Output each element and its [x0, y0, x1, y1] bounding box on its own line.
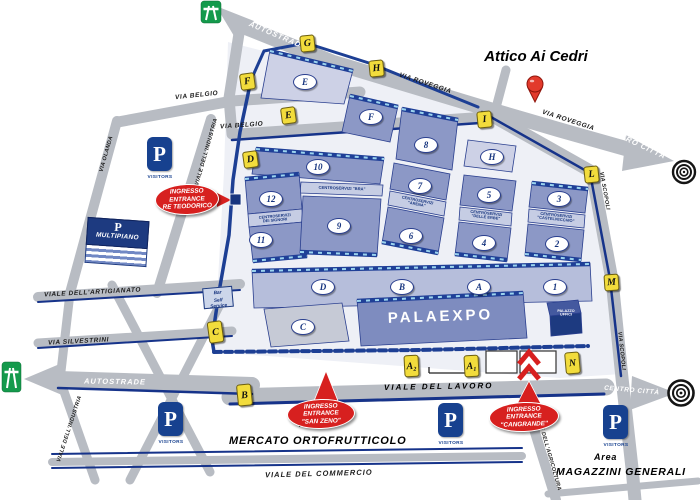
parking-visitors-label: VISITORS: [144, 175, 176, 180]
hall-label-10: 10: [306, 159, 330, 175]
gate-marker-f: F: [239, 72, 256, 91]
re-teodorico-gate-square: [230, 194, 241, 205]
road-label-autostrade-bottom: AUTOSTRADE: [84, 376, 146, 386]
hall-label-12: 12: [259, 191, 283, 207]
hall-label-9: 9: [327, 218, 351, 234]
map-title: Attico Ai Cedri: [436, 48, 636, 65]
multipiano-parking: PMULTIPIANO: [84, 217, 149, 267]
motorway-icon: [201, 1, 221, 23]
hall-label-d: D: [311, 279, 335, 295]
hall-label-11: 11: [249, 232, 273, 248]
parking-visitors-label: VISITORS: [155, 440, 187, 445]
hall-label-6: 6: [399, 228, 423, 244]
magazzini-label: MAGAZZINI GENERALI: [556, 466, 686, 478]
hall-label-2: 2: [545, 236, 569, 252]
road-label-viale-del-lavoro: VIALE DEL LAVORO: [384, 381, 494, 392]
hall-label-1: 1: [543, 279, 567, 295]
parking-visitors-icon: P: [438, 403, 463, 437]
gate-marker-e: E: [280, 106, 297, 125]
hall-label-h: H: [480, 149, 504, 165]
parking-visitors-label: VISITORS: [600, 443, 632, 448]
magazzini-area-word: Area: [594, 452, 617, 462]
gate-marker-c: C: [207, 320, 225, 344]
target-icon: [673, 161, 695, 183]
gate-marker-l: L: [583, 165, 600, 183]
motorway-icon: [2, 362, 21, 392]
parking-visitors-icon: P: [147, 137, 172, 171]
gate-marker-d: D: [242, 150, 259, 169]
gate-marker-b: B: [236, 383, 253, 406]
parking-visitors-label: VISITORS: [435, 441, 467, 446]
hall-label-b: B: [390, 279, 414, 295]
hall-label-5: 5: [477, 187, 501, 203]
parking-visitors-icon: P: [603, 405, 628, 439]
palazzo-uffici-label: PALAZZOUFFICI: [555, 309, 576, 316]
mercato-label: MERCATO ORTOFRUTTICOLO: [229, 435, 407, 447]
hall-label-c: C: [291, 319, 315, 335]
hall-label-8: 8: [414, 137, 438, 153]
gate-marker-a1: A₁: [463, 355, 479, 378]
hall-label-e: E: [293, 74, 317, 90]
fair-map: Attico Ai Cedri AUTOSTRADE VIA ROVEGGIA …: [0, 0, 700, 500]
hall-label-4: 4: [472, 235, 496, 251]
hall-label-a: A: [467, 279, 491, 295]
location-pin-icon: [527, 76, 543, 102]
hall-label-f: F: [359, 109, 383, 125]
bar-self-service: BarSelf Service: [202, 286, 234, 310]
target-icon: [669, 381, 694, 406]
gate-marker-g: G: [299, 34, 316, 52]
gate-marker-m: M: [603, 273, 619, 291]
gate-marker-i: I: [476, 110, 493, 128]
parking-visitors-icon: P: [158, 402, 183, 436]
hall-label-3: 3: [547, 191, 571, 207]
gate-marker-n: N: [564, 351, 581, 374]
hall-label-7: 7: [408, 178, 432, 194]
gate-marker-a2: A₂: [403, 355, 419, 378]
gate-marker-h: H: [368, 59, 385, 77]
